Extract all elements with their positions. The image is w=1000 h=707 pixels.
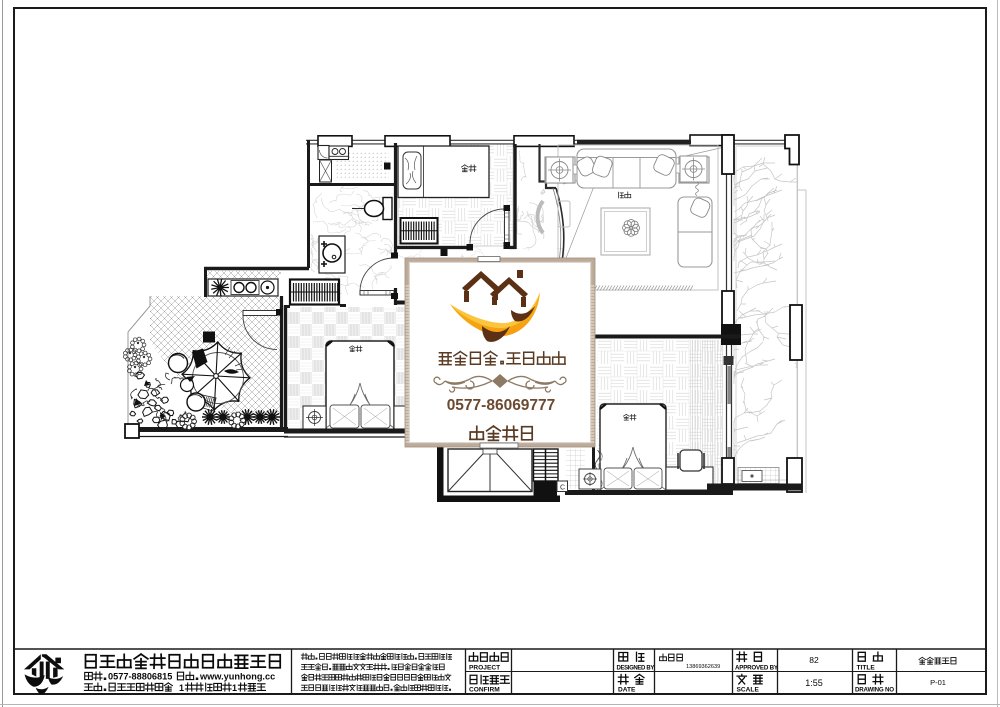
svg-text:0577-86069777: 0577-86069777 [447,397,556,414]
svg-text:PROJECT: PROJECT [469,665,500,672]
svg-text:DRAWING NO: DRAWING NO [855,687,894,694]
svg-text:13869362639: 13869362639 [686,664,720,670]
svg-text:1: 1 [232,683,237,693]
svg-text:CONFIRM: CONFIRM [469,687,500,694]
svg-text:0577-88806815: 0577-88806815 [108,672,172,682]
svg-text:P-01: P-01 [930,678,946,687]
svg-text:82: 82 [809,655,819,665]
svg-text:www.yunhong.cc: www.yunhong.cc [199,672,275,682]
svg-text:DESIGNED BY: DESIGNED BY [617,666,655,672]
svg-text:TITLE: TITLE [857,665,876,672]
svg-text:APPROVED BY: APPROVED BY [735,665,779,672]
svg-text:1:55: 1:55 [805,678,823,688]
svg-text:DATE: DATE [618,687,636,694]
svg-text:C: C [560,485,565,492]
svg-text:SCALE: SCALE [737,687,760,694]
svg-text:1: 1 [179,683,184,693]
